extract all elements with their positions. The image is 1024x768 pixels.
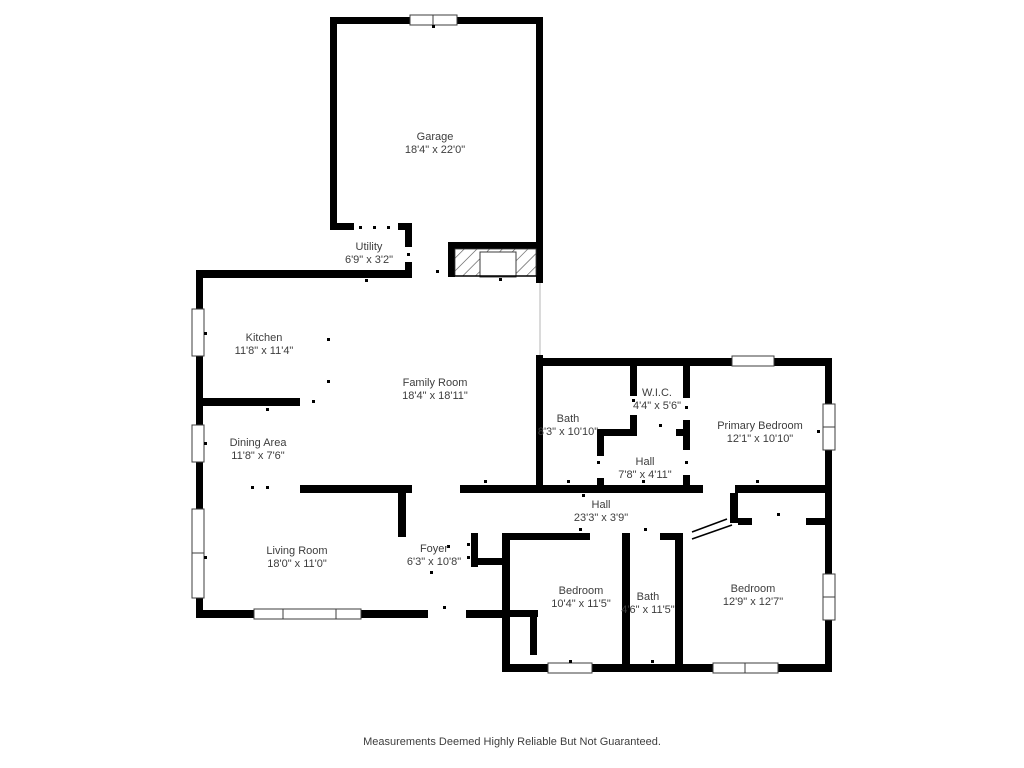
disclaimer-text: Measurements Deemed Highly Reliable But … [363,736,661,748]
room-label-foyer: Foyer6'3" x 10'8" [407,543,461,568]
windows [192,15,835,673]
window-dining [192,425,204,462]
room-label-bedroom-right: Bedroom12'9" x 12'7" [723,583,783,608]
room-label-bedroom-left: Bedroom10'4" x 11'5" [551,585,611,610]
room-label-wic: W.I.C.4'4" x 5'6" [633,387,681,412]
room-label-garage: Garage18'4" x 22'0" [405,131,465,156]
angled-wall [692,519,732,539]
room-label-bath-main: Bath8'3" x 10'10" [538,413,598,438]
room-label-primary-bedroom: Primary Bedroom12'1" x 10'10" [717,420,803,445]
room-labels: Garage18'4" x 22'0"Utility6'9" x 3'2"Kit… [230,131,803,616]
room-label-kitchen: Kitchen11'8" x 11'4" [235,332,294,357]
floor-plan-page: Garage18'4" x 22'0"Utility6'9" x 3'2"Kit… [0,0,1024,768]
room-label-family-room: Family Room18'4" x 18'11" [402,377,468,402]
floor-plan: Garage18'4" x 22'0"Utility6'9" x 3'2"Kit… [0,0,1024,768]
room-label-hall-main: Hall23'3" x 3'9" [574,499,628,524]
room-label-hall-inner: Hall7'8" x 4'11" [618,456,671,481]
window-wing-top [732,356,774,366]
room-label-dining-area: Dining Area11'8" x 7'6" [230,437,288,462]
window-living-bottom [254,609,361,619]
fireplace [448,249,537,277]
window-bedroom-left-bottom [548,663,592,673]
room-label-utility: Utility6'9" x 3'2" [345,241,393,266]
window-kitchen [192,309,204,356]
room-label-living-room: Living Room18'0" x 11'0" [266,545,327,570]
